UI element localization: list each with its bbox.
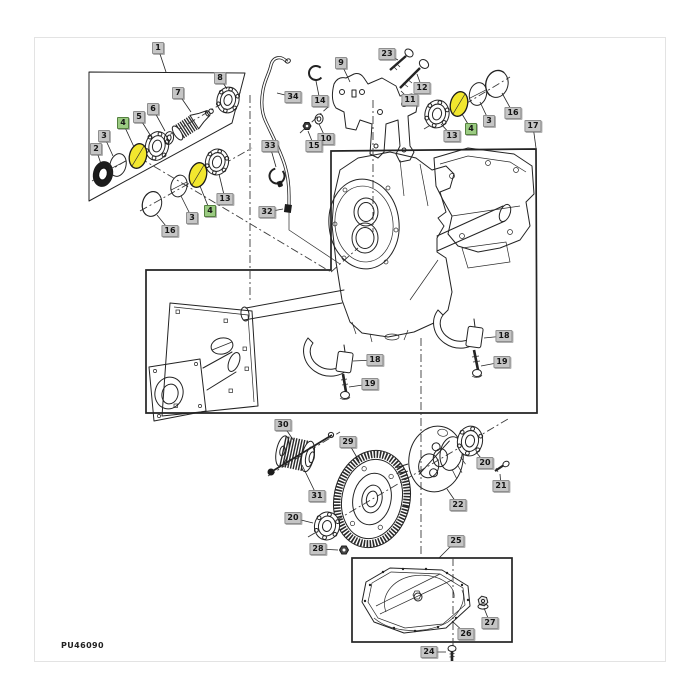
callout-21[interactable]: 21 — [492, 480, 509, 492]
callout-2[interactable]: 2 — [90, 143, 102, 155]
callout-19[interactable]: 19 — [361, 378, 378, 390]
drawing-code: PU46090 — [61, 641, 104, 650]
callout-23[interactable]: 23 — [378, 48, 395, 60]
callout-8[interactable]: 8 — [214, 72, 226, 84]
drain-plug — [477, 596, 489, 610]
cap-part — [483, 68, 511, 100]
cap-screw — [495, 460, 510, 472]
parts-diagram-stage: 1876543216341333323414101592312111343161… — [0, 0, 700, 700]
strap-block — [466, 326, 484, 348]
callout-20[interactable]: 20 — [284, 512, 301, 524]
exploded-view-drawing — [0, 0, 700, 700]
callout-14[interactable]: 14 — [311, 95, 328, 107]
ring-gear — [325, 443, 420, 555]
bearing-strap-assembly — [434, 310, 484, 377]
callout-31[interactable]: 31 — [308, 490, 325, 502]
bearing-part — [422, 98, 452, 131]
callout-22[interactable]: 22 — [449, 499, 466, 511]
axle-housing — [324, 152, 454, 342]
snap-ring-part — [306, 63, 326, 83]
gear-train — [268, 420, 510, 555]
left-axle-tube-and-plate — [149, 290, 344, 421]
callout-4-highlighted[interactable]: 4 — [117, 117, 129, 129]
page-frame — [35, 38, 666, 662]
bracket-stud — [352, 90, 356, 97]
strap-block — [336, 351, 354, 373]
callout-18[interactable]: 18 — [366, 354, 383, 366]
right-axle-tube-and-plate — [434, 148, 534, 268]
callout-11[interactable]: 11 — [401, 94, 418, 106]
callout-15[interactable]: 15 — [305, 140, 322, 152]
callout-6[interactable]: 6 — [147, 103, 159, 115]
callout-24[interactable]: 24 — [420, 646, 437, 658]
callout-3[interactable]: 3 — [186, 212, 198, 224]
callout-12[interactable]: 12 — [413, 82, 430, 94]
callout-26[interactable]: 26 — [457, 628, 474, 640]
callout-18[interactable]: 18 — [495, 330, 512, 342]
centerlines — [92, 77, 510, 648]
pan-bolt — [448, 646, 456, 662]
cap-part — [140, 189, 165, 218]
callout-13[interactable]: 13 — [216, 193, 233, 205]
callout-25[interactable]: 25 — [447, 535, 464, 547]
nut-part — [303, 123, 311, 130]
callout-3[interactable]: 3 — [98, 130, 110, 142]
strap-bolt — [474, 350, 478, 370]
callout-1[interactable]: 1 — [152, 42, 164, 54]
callout-28[interactable]: 28 — [309, 543, 326, 555]
nut-part — [340, 546, 349, 554]
callout-9[interactable]: 9 — [335, 57, 347, 69]
callout-20[interactable]: 20 — [476, 457, 493, 469]
callout-17[interactable]: 17 — [524, 120, 541, 132]
tube-fitting — [284, 205, 291, 213]
callout-7[interactable]: 7 — [172, 87, 184, 99]
bearing-part — [455, 424, 486, 459]
callout-32[interactable]: 32 — [258, 206, 275, 218]
callout-27[interactable]: 27 — [481, 617, 498, 629]
callout-29[interactable]: 29 — [339, 436, 356, 448]
callout-30[interactable]: 30 — [274, 419, 291, 431]
callout-5[interactable]: 5 — [133, 111, 145, 123]
callout-4-highlighted[interactable]: 4 — [465, 123, 477, 135]
right-mounting-plate — [434, 148, 534, 252]
callout-19[interactable]: 19 — [493, 356, 510, 368]
callout-33[interactable]: 33 — [261, 140, 278, 152]
strap-bolt — [343, 374, 346, 392]
highlighted-shim-markers — [127, 90, 471, 189]
callout-4-highlighted[interactable]: 4 — [204, 205, 216, 217]
callout-16[interactable]: 16 — [504, 107, 521, 119]
callout-13[interactable]: 13 — [443, 130, 460, 142]
callout-16[interactable]: 16 — [161, 225, 178, 237]
bearing-strap-assembly — [304, 338, 354, 399]
callout-34[interactable]: 34 — [284, 91, 301, 103]
bearing-part — [214, 85, 242, 116]
gear-shaft-part — [170, 103, 217, 141]
housing-flange — [324, 176, 403, 273]
callout-3[interactable]: 3 — [483, 115, 495, 127]
vent-tube-assembly — [262, 58, 340, 264]
